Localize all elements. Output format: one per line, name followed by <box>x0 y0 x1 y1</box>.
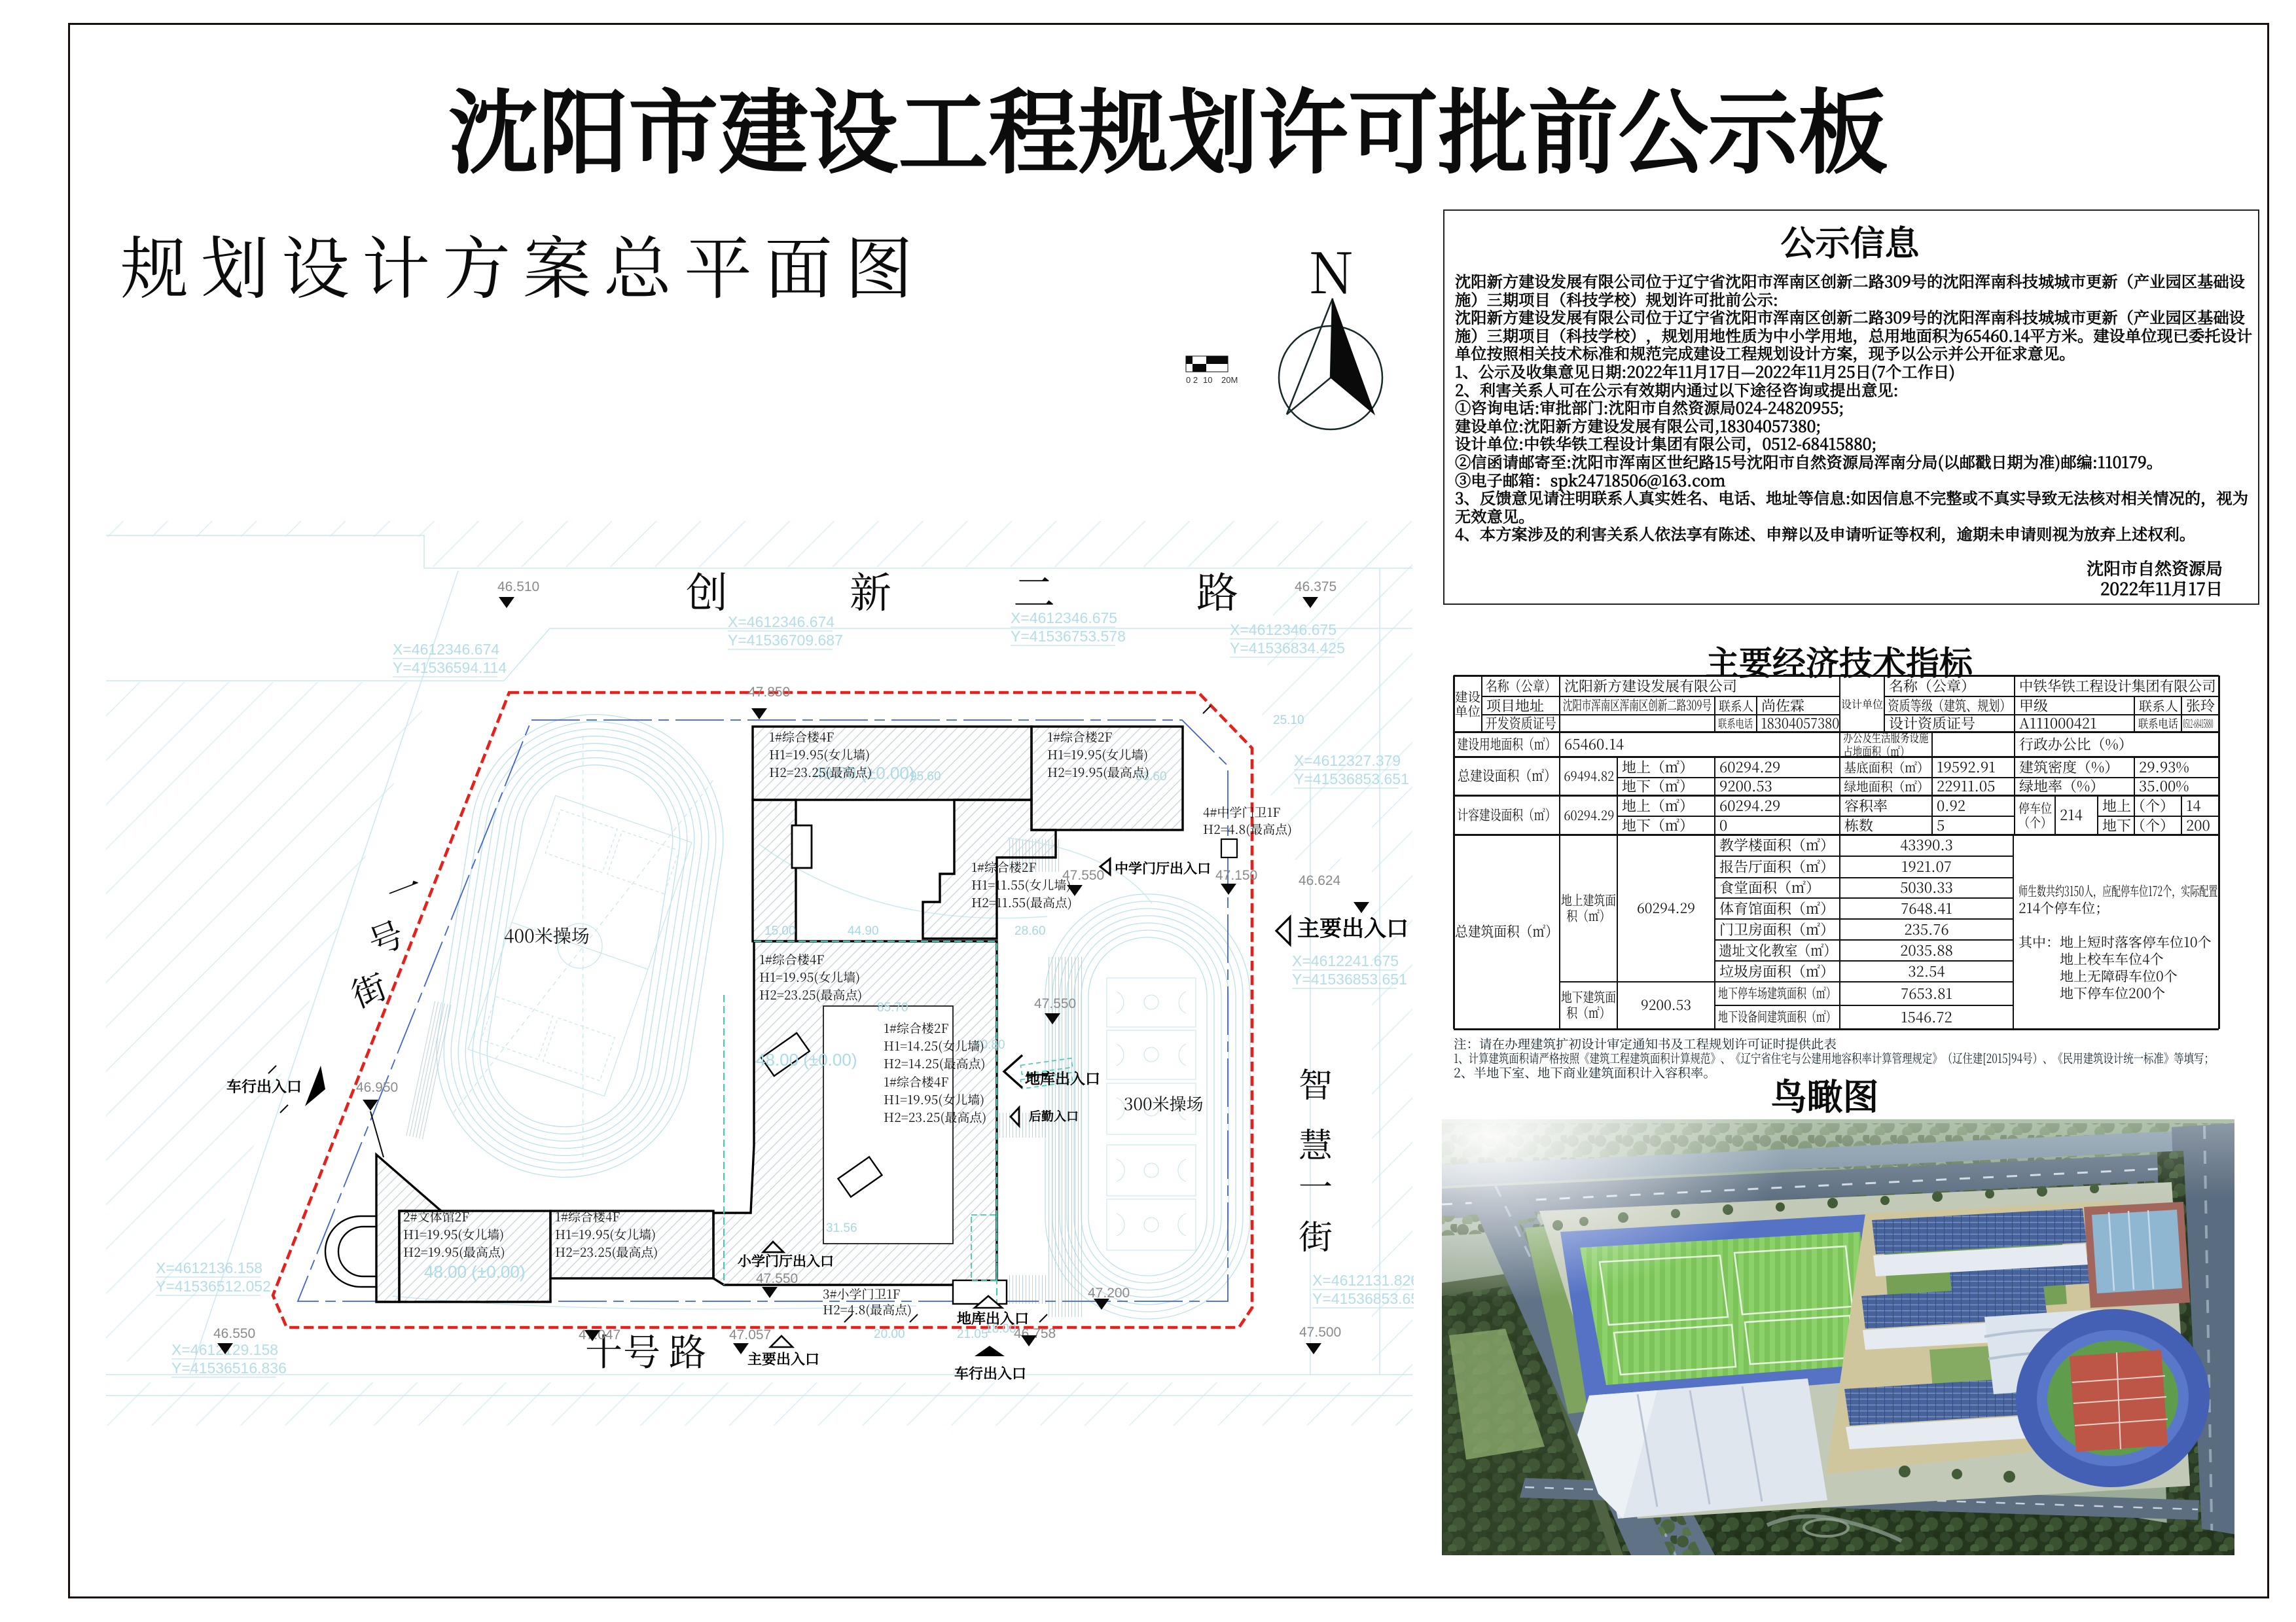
svg-text:20.00: 20.00 <box>874 1327 905 1341</box>
svg-text:中学门厅出入口: 中学门厅出入口 <box>1115 858 1211 878</box>
svg-text:主要出入口: 主要出入口 <box>1297 910 1408 943</box>
svg-text:400米操场: 400米操场 <box>504 922 590 948</box>
svg-text:47.047: 47.047 <box>579 1327 620 1343</box>
svg-text:H1=19.95(女儿墙): H1=19.95(女儿墙) <box>769 746 870 763</box>
svg-text:新: 新 <box>850 560 891 620</box>
svg-text:地库出入口: 地库出入口 <box>1025 1067 1100 1089</box>
svg-text:H1=19.95(女儿墙): H1=19.95(女儿墙) <box>403 1225 504 1243</box>
svg-text:H2=23.25(最高点): H2=23.25(最高点) <box>769 763 872 781</box>
svg-text:N: N <box>1309 242 1354 310</box>
svg-text:48.00 (±0.00): 48.00 (±0.00) <box>424 1262 525 1282</box>
svg-text:1#综合楼2F: 1#综合楼2F <box>884 1019 948 1037</box>
svg-text:H1=19.95(女儿墙): H1=19.95(女儿墙) <box>884 1090 984 1108</box>
svg-text:H2=4.8(最高点): H2=4.8(最高点) <box>1203 820 1292 838</box>
svg-text:15.00: 15.00 <box>764 924 796 938</box>
svg-text:47.550: 47.550 <box>756 1271 798 1286</box>
svg-text:X=4612346.674: X=4612346.674 <box>393 641 499 658</box>
svg-text:Y=41536853.651: Y=41536853.651 <box>1292 971 1407 988</box>
svg-text:二: 二 <box>1013 560 1055 620</box>
svg-text:智: 智 <box>1299 1058 1333 1107</box>
svg-text:H2=4.8(最高点): H2=4.8(最高点) <box>823 1301 912 1318</box>
svg-text:47.150: 47.150 <box>1215 868 1257 883</box>
svg-text:46.375: 46.375 <box>1295 579 1336 594</box>
svg-text:X=4612131.826: X=4612131.826 <box>1312 1272 1414 1289</box>
svg-text:44.90: 44.90 <box>848 924 879 938</box>
svg-text:H2=19.95(最高点): H2=19.95(最高点) <box>403 1243 505 1261</box>
svg-text:X=4612346.675: X=4612346.675 <box>1230 621 1336 638</box>
svg-text:47.850: 47.850 <box>748 685 790 700</box>
svg-text:街: 街 <box>1299 1210 1333 1259</box>
svg-text:47.550: 47.550 <box>1034 996 1076 1011</box>
svg-text:Y=41536753.578: Y=41536753.578 <box>1011 628 1126 645</box>
svg-text:2#文体馆2F: 2#文体馆2F <box>403 1208 469 1225</box>
svg-text:H1=11.55(女儿墙): H1=11.55(女儿墙) <box>971 876 1071 893</box>
svg-text:Y=41536594.114: Y=41536594.114 <box>393 659 507 676</box>
svg-text:46.758: 46.758 <box>1014 1326 1056 1341</box>
svg-text:47.550: 47.550 <box>1062 868 1104 883</box>
svg-text:10: 10 <box>1203 375 1212 385</box>
svg-text:48.00 (±0.00): 48.00 (±0.00) <box>756 1050 857 1070</box>
svg-text:3#小学门卫1F: 3#小学门卫1F <box>823 1285 900 1303</box>
svg-text:46.510: 46.510 <box>497 579 539 594</box>
svg-text:H1=19.95(女儿墙): H1=19.95(女儿墙) <box>555 1225 656 1243</box>
svg-text:H1=19.95(女儿墙): H1=19.95(女儿墙) <box>1047 746 1148 763</box>
svg-text:47.200: 47.200 <box>1088 1286 1130 1301</box>
svg-text:号: 号 <box>623 1323 660 1377</box>
svg-text:46.950: 46.950 <box>356 1080 398 1095</box>
svg-text:31.56: 31.56 <box>826 1221 857 1235</box>
svg-text:47.500: 47.500 <box>1299 1325 1341 1340</box>
svg-text:X=4612346.674: X=4612346.674 <box>728 613 834 630</box>
svg-text:H1=19.95(女儿墙): H1=19.95(女儿墙) <box>759 968 860 986</box>
svg-text:Y=41536853.652: Y=41536853.652 <box>1312 1290 1414 1307</box>
svg-text:后勤入口: 后勤入口 <box>1029 1107 1079 1125</box>
svg-text:1#综合楼4F: 1#综合楼4F <box>884 1073 948 1090</box>
svg-text:47.057: 47.057 <box>729 1327 771 1343</box>
svg-text:Y=41536709.687: Y=41536709.687 <box>728 632 843 649</box>
svg-text:车行出入口: 车行出入口 <box>954 1363 1026 1383</box>
svg-text:小学门厅出入口: 小学门厅出入口 <box>738 1251 834 1271</box>
svg-text:Y=41536853.651: Y=41536853.651 <box>1294 770 1409 787</box>
svg-text:H1=14.25(女儿墙): H1=14.25(女儿墙) <box>884 1037 984 1054</box>
svg-text:H2=23.25(最高点): H2=23.25(最高点) <box>884 1108 986 1126</box>
svg-text:300米操场: 300米操场 <box>1124 1091 1203 1115</box>
svg-text:H2=11.55(最高点): H2=11.55(最高点) <box>971 893 1072 911</box>
svg-text:H2=14.25(最高点): H2=14.25(最高点) <box>884 1054 986 1072</box>
svg-text:H2=23.25(最高点): H2=23.25(最高点) <box>759 986 862 1003</box>
svg-text:X=4612241.675: X=4612241.675 <box>1292 952 1399 969</box>
svg-text:X=4612136.158: X=4612136.158 <box>156 1259 262 1276</box>
svg-text:1#综合楼2F: 1#综合楼2F <box>971 858 1036 876</box>
svg-text:1#综合楼4F: 1#综合楼4F <box>555 1208 620 1225</box>
svg-text:H2=23.25(最高点): H2=23.25(最高点) <box>555 1243 658 1261</box>
svg-text:主要出入口: 主要出入口 <box>747 1348 819 1369</box>
svg-text:Y=41536512.052: Y=41536512.052 <box>156 1278 271 1295</box>
svg-text:21.05: 21.05 <box>957 1327 988 1341</box>
svg-text:车行出入口: 车行出入口 <box>226 1075 302 1096</box>
svg-text:地库出入口: 地库出入口 <box>957 1308 1029 1328</box>
svg-text:0 2: 0 2 <box>1186 375 1198 385</box>
svg-text:1#综合楼4F: 1#综合楼4F <box>759 950 824 968</box>
svg-text:28.60: 28.60 <box>1014 924 1046 938</box>
svg-text:路: 路 <box>1196 560 1238 620</box>
svg-text:46.624: 46.624 <box>1299 873 1341 888</box>
svg-text:一: 一 <box>1299 1160 1333 1209</box>
svg-text:1#综合楼4F: 1#综合楼4F <box>769 728 834 746</box>
svg-text:20M: 20M <box>1221 375 1238 385</box>
svg-text:X=4612327.379: X=4612327.379 <box>1294 752 1401 769</box>
svg-text:Y=41536516.836: Y=41536516.836 <box>171 1360 287 1377</box>
svg-text:H2=19.95(最高点): H2=19.95(最高点) <box>1047 763 1149 781</box>
svg-text:25.10: 25.10 <box>1273 713 1304 727</box>
svg-text:1#综合楼2F: 1#综合楼2F <box>1047 728 1112 746</box>
svg-text:46.550: 46.550 <box>213 1326 255 1341</box>
svg-text:85.70: 85.70 <box>877 1001 908 1015</box>
svg-text:路: 路 <box>669 1323 706 1377</box>
svg-text:Y=41536834.425: Y=41536834.425 <box>1230 640 1345 657</box>
svg-text:创: 创 <box>686 560 728 620</box>
svg-text:95.60: 95.60 <box>910 770 941 784</box>
svg-text:4#中学门卫1F: 4#中学门卫1F <box>1203 803 1280 821</box>
